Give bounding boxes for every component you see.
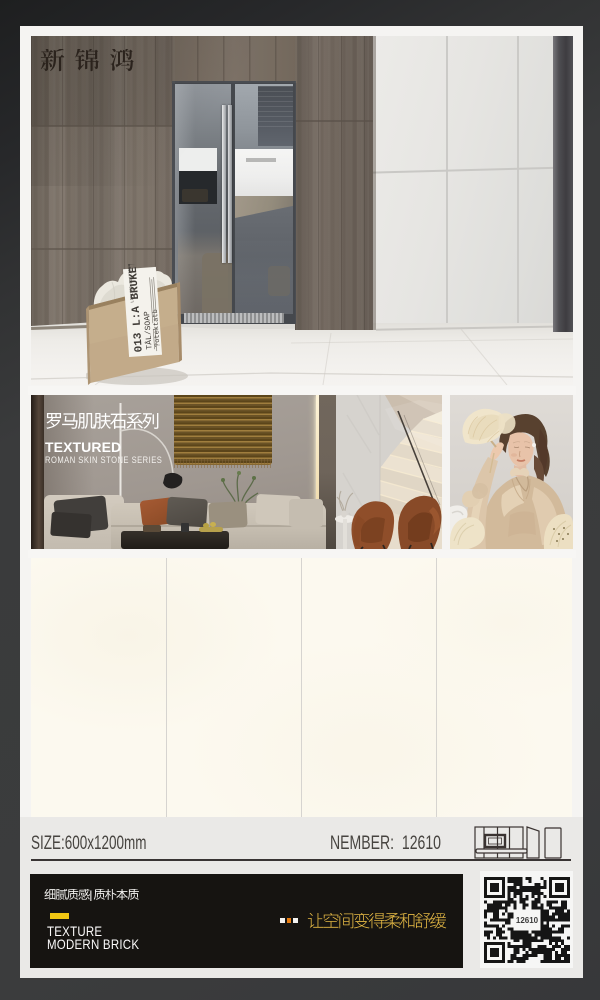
svg-text:12610: 12610 — [516, 916, 539, 925]
